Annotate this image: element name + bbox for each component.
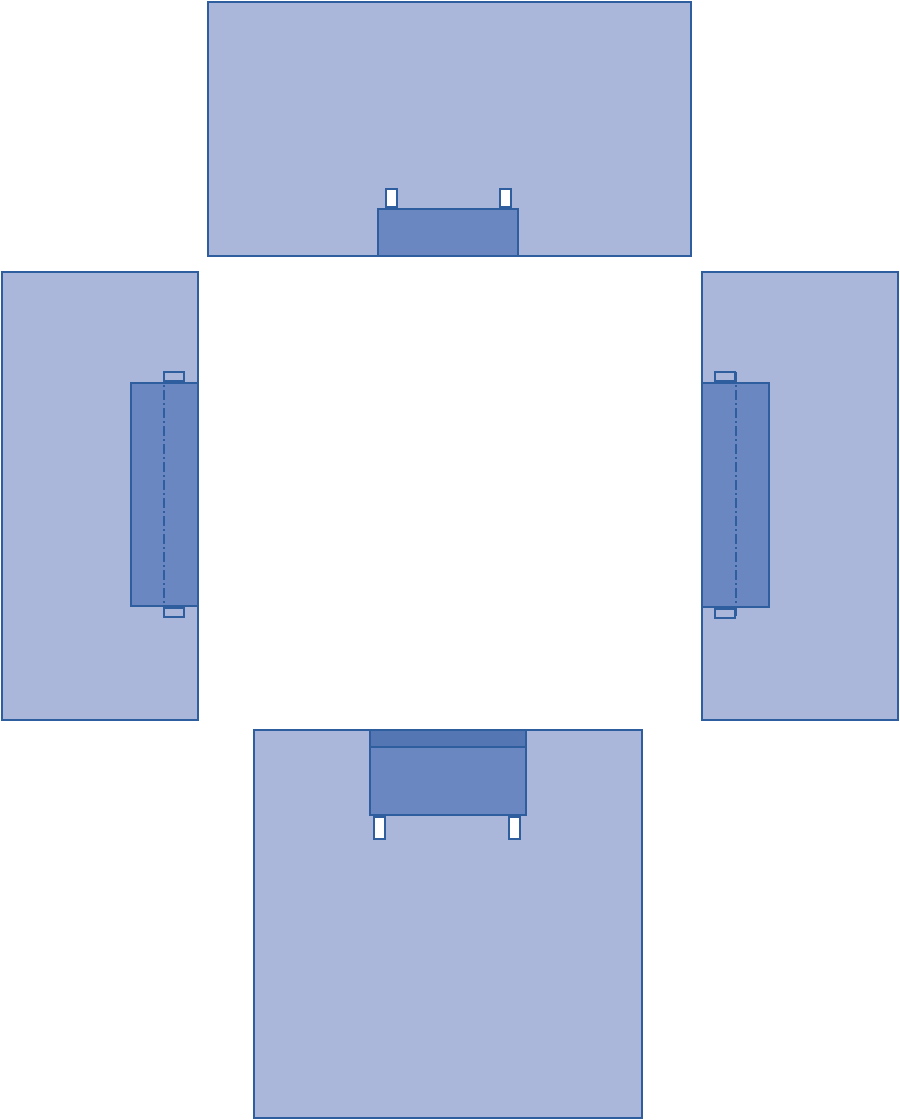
reinforcement-rect-top [377, 208, 519, 257]
drape-diagram-canvas [0, 0, 900, 1120]
fold-centerline-right [735, 372, 737, 618]
reinforcement-band-bottom [371, 731, 525, 748]
reinforcement-rect-bottom [369, 729, 527, 816]
attachment-tab-bottom-a [373, 816, 386, 840]
attachment-tab-right-a [714, 371, 736, 382]
attachment-tab-left-a [163, 371, 185, 382]
attachment-tab-top-b [499, 188, 512, 208]
attachment-tab-left-b [163, 607, 185, 618]
attachment-tab-right-b [714, 608, 736, 619]
fold-centerline-left [163, 372, 165, 617]
attachment-tab-bottom-b [508, 816, 521, 840]
attachment-tab-top-a [385, 188, 398, 208]
